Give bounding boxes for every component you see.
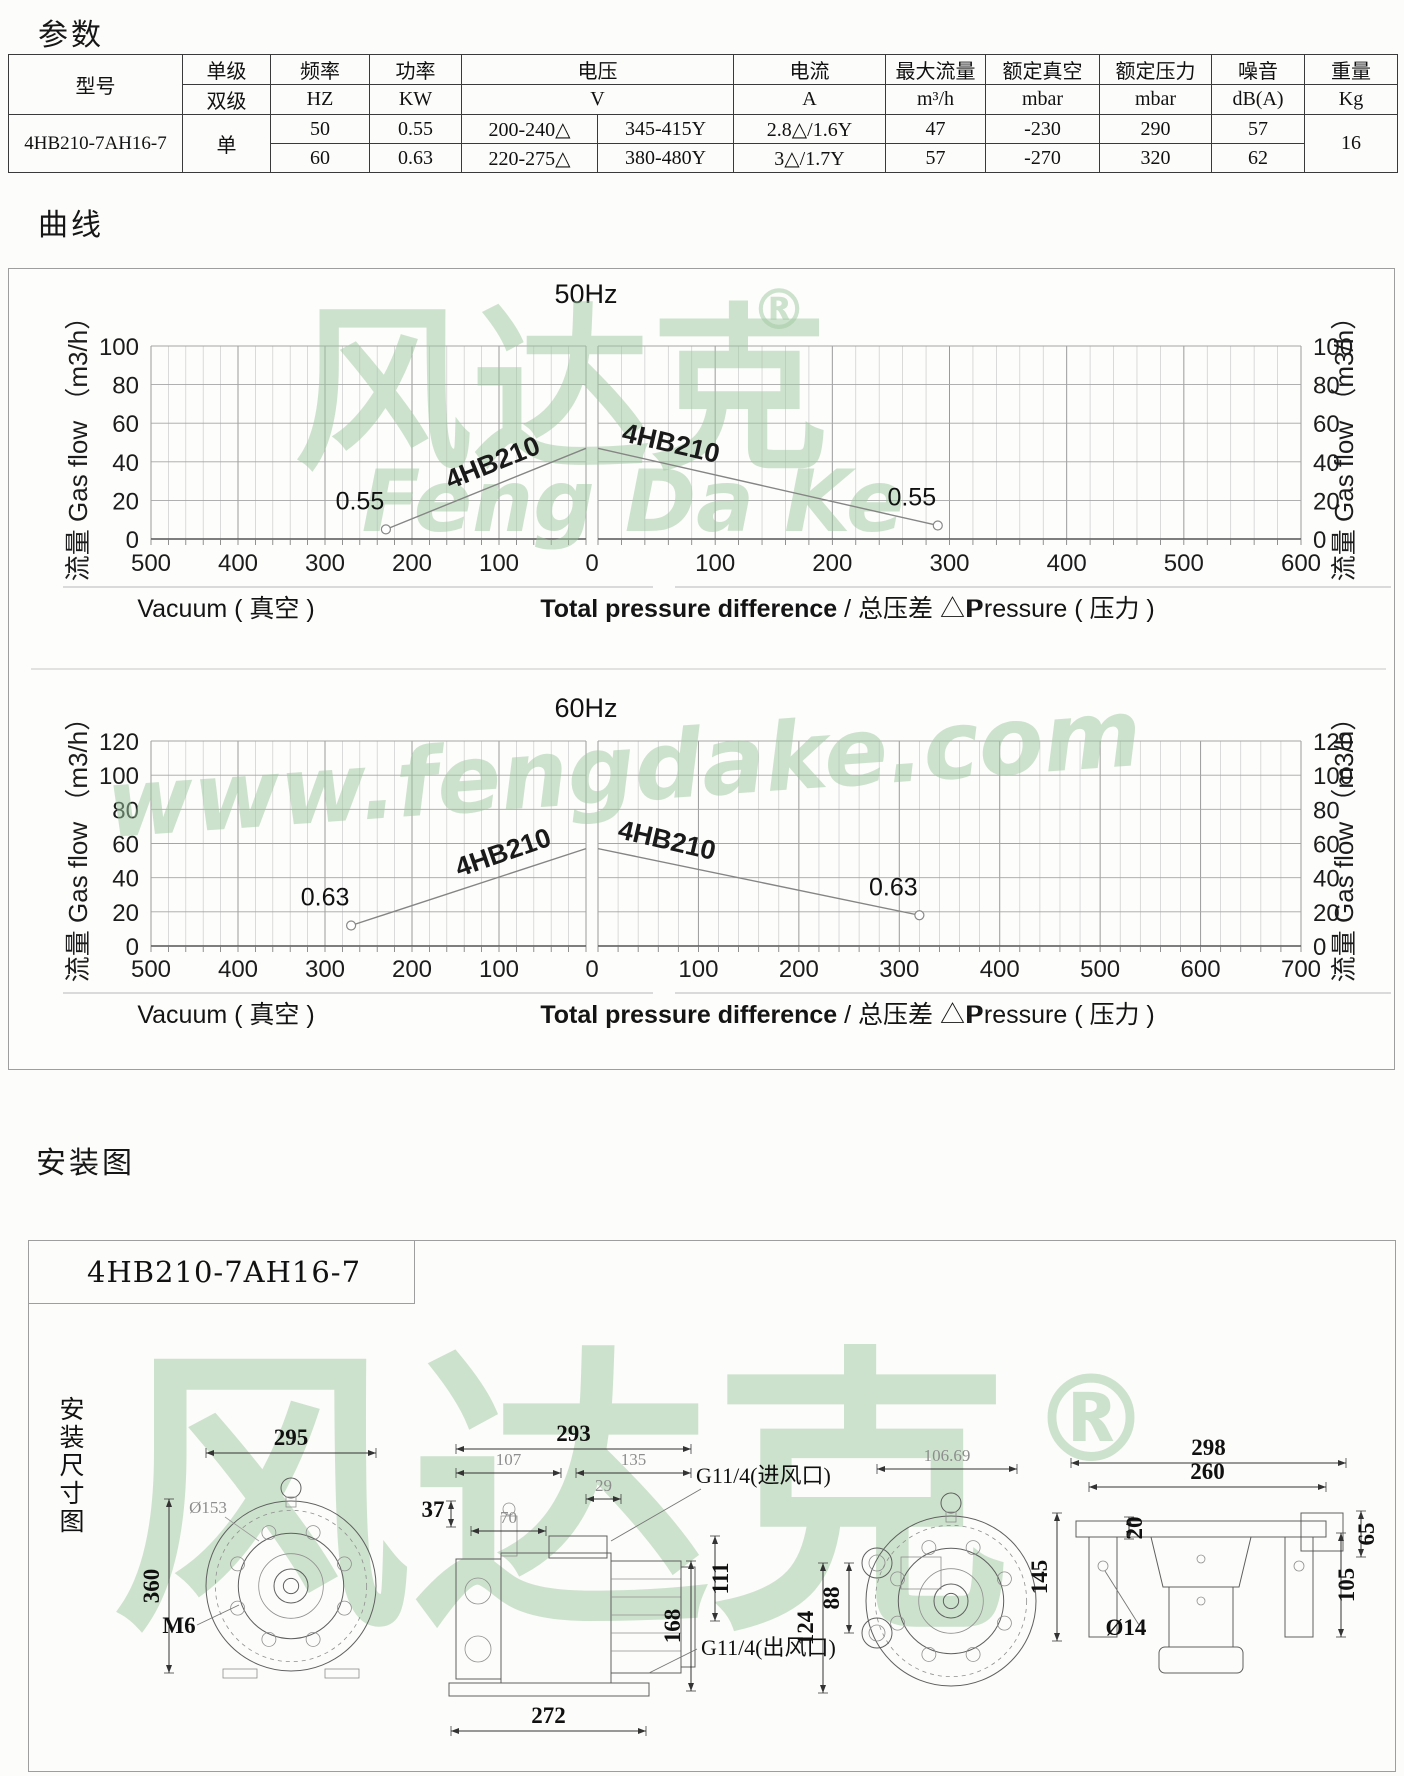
- install-side-label: 安装尺寸图: [57, 1397, 87, 1537]
- td-voltage-delta-60: 220-275△: [462, 144, 598, 173]
- td-voltage-y-50: 345-415Y: [598, 115, 734, 144]
- x-tick-label: 300: [305, 550, 345, 577]
- y-axis-label-right: 流量 Gas flow （m3/h）: [1329, 304, 1359, 581]
- x-tick-label: 500: [131, 956, 171, 983]
- install-model-label: 4HB210-7AH16-7: [29, 1241, 415, 1304]
- x-tick-label: 100: [479, 550, 519, 577]
- watermark-text: ®: [1031, 1351, 1151, 1490]
- x-tick-label: 200: [812, 550, 852, 577]
- td-current-50: 2.8△/1.6Y: [734, 115, 886, 144]
- th-model: 型号: [9, 55, 183, 115]
- pressure-diff-caption: Total pressure difference / 总压差 △P: [540, 1001, 981, 1029]
- th-frequency-unit: HZ: [271, 85, 370, 115]
- params-section-title: 参数: [38, 10, 104, 54]
- watermark: 风达克®: [111, 1323, 1151, 1672]
- y-tick-label: 60: [112, 411, 139, 438]
- dimension-label: 124: [793, 1610, 818, 1645]
- x-tick-label: 0: [585, 550, 598, 577]
- th-power: 功率: [370, 55, 462, 85]
- y-tick-label: 20: [112, 488, 139, 515]
- x-tick-label: 100: [695, 550, 735, 577]
- th-power-unit: KW: [370, 85, 462, 115]
- dimension-label: 272: [531, 1703, 566, 1728]
- td-noise-50: 57: [1212, 115, 1305, 144]
- curve-end-marker: [933, 521, 942, 530]
- dimension-label: 105: [1334, 1568, 1359, 1603]
- chart-50hz: 0020204040606080801001005004003002001000…: [9, 269, 1396, 671]
- header-row-1: 型号 单级 频率 功率 电压 电流 最大流量 额定真空 额定压力 噪音 重量: [9, 55, 1398, 85]
- data-row-50hz: 4HB210-7AH16-7 单 50 0.55 200-240△ 345-41…: [9, 115, 1398, 144]
- dimension-label: 20: [1122, 1517, 1147, 1540]
- install-box: 风达克®295360Ø153M6293107135297037111168272…: [28, 1240, 1396, 1772]
- x-tick-label: 600: [1181, 956, 1221, 983]
- th-stage-single: 单级: [183, 55, 271, 85]
- td-freq-50: 50: [271, 115, 370, 144]
- chart-60hz: 0020204040606080801001001201205004003002…: [9, 671, 1396, 1068]
- dimension-label: 260: [1190, 1459, 1225, 1484]
- power-label: 0.55: [336, 487, 385, 515]
- x-tick-label: 500: [131, 550, 171, 577]
- th-voltage-unit: V: [462, 85, 734, 115]
- dimension-label: 298: [1191, 1435, 1226, 1460]
- x-tick-label: 400: [980, 956, 1020, 983]
- td-voltage-delta-50: 200-240△: [462, 115, 598, 144]
- dimension-label: 37: [422, 1497, 445, 1522]
- dimension-label: M6: [162, 1613, 195, 1638]
- power-label: 0.55: [887, 483, 936, 511]
- td-weight: 16: [1305, 115, 1398, 173]
- watermark: 风达克®Feng Da Ke: [294, 278, 904, 552]
- y-axis-label-right: 流量 Gas flow （m3/h）: [1329, 705, 1359, 982]
- y-axis-label-left: 流量 Gas flow （m3/h）: [63, 304, 93, 581]
- y-tick-label: 40: [112, 866, 139, 893]
- x-tick-label: 200: [392, 956, 432, 983]
- dimension-label: 145: [1027, 1560, 1052, 1595]
- curves-box: 0020204040606080801001005004003002001000…: [8, 268, 1395, 1070]
- x-tick-label: 100: [678, 956, 718, 983]
- x-tick-label: 400: [218, 550, 258, 577]
- curve-end-marker: [381, 525, 390, 534]
- td-freq-60: 60: [271, 144, 370, 173]
- th-frequency: 频率: [271, 55, 370, 85]
- td-max-flow-60: 57: [886, 144, 986, 173]
- dimension-label: 360: [139, 1569, 164, 1604]
- dimension-label: 135: [621, 1450, 647, 1469]
- x-tick-label: 600: [1281, 550, 1321, 577]
- dimension-label: 295: [274, 1425, 309, 1450]
- dimension-label: 293: [556, 1421, 591, 1446]
- td-power-60: 0.63: [370, 144, 462, 173]
- th-weight-unit: Kg: [1305, 85, 1398, 115]
- th-voltage: 电压: [462, 55, 734, 85]
- power-label: 0.63: [869, 873, 918, 901]
- curve-end-marker: [915, 911, 924, 920]
- th-rated-vacuum: 额定真空: [986, 55, 1100, 85]
- y-tick-label: 40: [112, 450, 139, 477]
- dimension-label: 106.69: [924, 1446, 971, 1465]
- th-max-flow-unit: m³/h: [886, 85, 986, 115]
- td-max-flow-50: 47: [886, 115, 986, 144]
- dimension-label: 111: [708, 1563, 733, 1595]
- td-rated-vacuum-60: -270: [986, 144, 1100, 173]
- th-noise: 噪音: [1212, 55, 1305, 85]
- th-max-flow: 最大流量: [886, 55, 986, 85]
- x-tick-label: 300: [305, 956, 345, 983]
- pressure-diff-caption: Total pressure difference / 总压差 △P: [540, 595, 981, 623]
- y-axis-label-left: 流量 Gas flow （m3/h）: [63, 705, 93, 982]
- watermark-text: 风达克: [111, 1323, 1011, 1672]
- params-table: 型号 单级 频率 功率 电压 电流 最大流量 额定真空 额定压力 噪音 重量 双…: [8, 54, 1398, 173]
- td-noise-60: 62: [1212, 144, 1305, 173]
- td-model: 4HB210-7AH16-7: [9, 115, 183, 173]
- vacuum-caption: Vacuum ( 真空 ): [137, 1001, 314, 1029]
- td-rated-pressure-60: 320: [1100, 144, 1212, 173]
- datasheet-page: 参数 型号 单级 频率 功率 电压 电流 最大流量 额定真空 额定压力 噪音 重…: [0, 0, 1404, 1776]
- x-tick-label: 400: [218, 956, 258, 983]
- dimension-label: Ø14: [1106, 1615, 1147, 1640]
- y-tick-label: 100: [99, 334, 139, 361]
- install-drawing: 风达克®295360Ø153M6293107135297037111168272…: [29, 1241, 1397, 1773]
- th-noise-unit: dB(A): [1212, 85, 1305, 115]
- x-tick-label: 500: [1080, 956, 1120, 983]
- th-rated-vacuum-unit: mbar: [986, 85, 1100, 115]
- th-current: 电流: [734, 55, 886, 85]
- dimension-label: 70: [500, 1508, 517, 1527]
- curve-name-label: 4HB210: [615, 814, 718, 866]
- th-current-unit: A: [734, 85, 886, 115]
- x-tick-label: 100: [479, 956, 519, 983]
- inlet-port-label: G11/4(进风口): [696, 1463, 831, 1488]
- td-power-50: 0.55: [370, 115, 462, 144]
- td-current-60: 3△/1.7Y: [734, 144, 886, 173]
- x-tick-label: 300: [879, 956, 919, 983]
- x-tick-label: 500: [1164, 550, 1204, 577]
- td-voltage-y-60: 380-480Y: [598, 144, 734, 173]
- th-rated-pressure: 额定压力: [1100, 55, 1212, 85]
- dimension-label: 168: [660, 1609, 685, 1644]
- td-stage: 单: [183, 115, 271, 173]
- x-tick-label: 200: [779, 956, 819, 983]
- dimension-label: 65: [1354, 1523, 1379, 1546]
- install-section-title: 安装图: [36, 1138, 135, 1182]
- pressure-caption: Pressure ( 压力 ): [967, 1001, 1155, 1029]
- watermark-text: ®: [751, 278, 807, 343]
- pressure-caption: Pressure ( 压力 ): [967, 595, 1155, 623]
- curves-section-title: 曲线: [38, 200, 104, 244]
- y-tick-label: 80: [112, 373, 139, 400]
- x-tick-label: 0: [585, 956, 598, 983]
- dimension-label: Ø153: [189, 1498, 227, 1517]
- th-rated-pressure-unit: mbar: [1100, 85, 1212, 115]
- x-tick-label: 700: [1281, 956, 1321, 983]
- th-weight: 重量: [1305, 55, 1398, 85]
- dimension-label: 107: [496, 1450, 522, 1469]
- y-tick-label: 20: [112, 900, 139, 927]
- td-rated-pressure-50: 290: [1100, 115, 1212, 144]
- vacuum-caption: Vacuum ( 真空 ): [137, 595, 314, 623]
- curve-end-marker: [347, 921, 356, 930]
- x-tick-label: 300: [929, 550, 969, 577]
- header-row-2: 双级 HZ KW V A m³/h mbar mbar dB(A) Kg: [9, 85, 1398, 115]
- x-tick-label: 200: [392, 550, 432, 577]
- x-tick-label: 400: [1047, 550, 1087, 577]
- td-rated-vacuum-50: -230: [986, 115, 1100, 144]
- power-label: 0.63: [301, 884, 350, 912]
- dimension-label: 29: [595, 1476, 612, 1495]
- th-stage-double: 双级: [183, 85, 271, 115]
